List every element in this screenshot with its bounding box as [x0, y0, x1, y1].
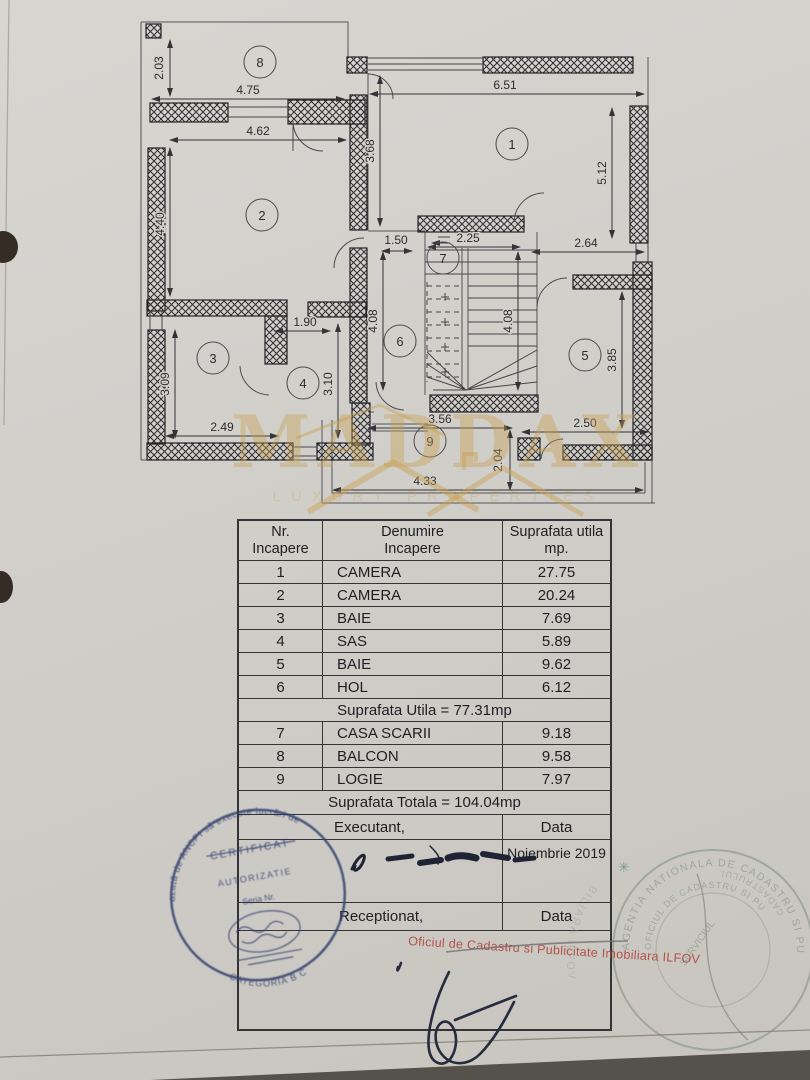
row-denumire: CAMERA	[322, 584, 502, 606]
table-row: 8 BALCON 9.58	[239, 744, 610, 767]
row-suprafata: 20.24	[502, 584, 610, 606]
dim-room3-h: 3.09	[158, 372, 172, 396]
table-row: 6 HOL 6.12	[239, 675, 610, 698]
room-label-9: 9	[426, 434, 433, 449]
header-suprafata-line2: mp.	[544, 541, 568, 558]
row-denumire: BAIE	[322, 607, 502, 629]
row-denumire: CAMERA	[322, 561, 502, 583]
row-suprafata: 27.75	[502, 561, 610, 583]
room-label-5: 5	[581, 348, 588, 363]
row-suprafata: 9.18	[502, 722, 610, 744]
row-denumire: HOL	[322, 676, 502, 698]
subtotal-text: Suprafata Utila = 77.31mp	[337, 702, 512, 719]
dim-room4-h: 3.10	[321, 372, 335, 396]
dim-hall-top-h: 3.68	[363, 139, 377, 163]
row-denumire: LOGIE	[322, 768, 502, 790]
executant-label: Executant,	[239, 815, 502, 839]
executant-row: Executant, Data	[239, 814, 610, 839]
dim-stairs-h-left: 4.08	[366, 309, 380, 333]
header-denumire-line1: Denumire	[381, 524, 444, 541]
table-row: 1 CAMERA 27.75	[239, 560, 610, 583]
dim-stairs-h-right: 4.08	[501, 309, 515, 333]
row-nr: 2	[239, 584, 322, 606]
date-value: Noiembrie 2019	[502, 840, 610, 902]
row-denumire: SAS	[322, 630, 502, 652]
row-suprafata: 9.62	[502, 653, 610, 675]
room-number-labels: 1 2 3 4 5 6 7 8 9	[209, 55, 588, 449]
table-row: 2 CAMERA 20.24	[239, 583, 610, 606]
receptionat-row: Receptionat, Data	[239, 902, 610, 930]
subtotal-row: Suprafata Utila = 77.31mp	[239, 698, 610, 721]
header-suprafata-line1: Suprafata utila	[510, 524, 604, 541]
table-row: 7 CASA SCARII 9.18	[239, 721, 610, 744]
row-nr: 5	[239, 653, 322, 675]
data-label-1: Data	[502, 815, 610, 839]
row-denumire: BAIE	[322, 653, 502, 675]
row-denumire: BALCON	[322, 745, 502, 767]
north-marker	[146, 24, 161, 38]
dim-balcony-w: 4.75	[236, 83, 260, 97]
data-label-2: Data	[502, 903, 610, 930]
receptionat-label: Receptionat,	[239, 903, 502, 930]
dim-logie-w: 4.33	[413, 474, 437, 488]
row-nr: 9	[239, 768, 322, 790]
room-label-7: 7	[439, 251, 446, 266]
table-row: 9 LOGIE 7.97	[239, 767, 610, 790]
total-row: Suprafata Totala = 104.04mp	[239, 790, 610, 814]
dim-stairs-w: 2.25	[456, 231, 480, 245]
header-nr-line1: Nr.	[271, 524, 290, 541]
room-label-4: 4	[299, 376, 306, 391]
row-suprafata: 7.69	[502, 607, 610, 629]
header-nr-line2: Incapere	[252, 541, 308, 558]
header-suprafata: Suprafata utila mp.	[502, 521, 610, 560]
dim-logie-h: 2.04	[491, 448, 505, 472]
dim-room5-h: 3.85	[605, 348, 619, 372]
dim-room3-w: 2.49	[210, 420, 234, 434]
dim-room5-w: 2.50	[573, 416, 597, 430]
dim-room2-w: 4.62	[246, 124, 270, 138]
header-nr: Nr. Incapere	[239, 521, 322, 560]
dim-balcony-h: 2.03	[152, 56, 166, 80]
signature-row: Noiembrie 2019	[239, 839, 610, 902]
row-denumire: CASA SCARII	[322, 722, 502, 744]
receptionat-signature-cell	[239, 930, 610, 1029]
room-label-8: 8	[256, 55, 263, 70]
table-header-row: Nr. Incapere Denumire Incapere Suprafata…	[239, 521, 610, 560]
row-suprafata: 9.58	[502, 745, 610, 767]
row-nr: 8	[239, 745, 322, 767]
row-nr: 4	[239, 630, 322, 652]
area-table: Nr. Incapere Denumire Incapere Suprafata…	[237, 519, 612, 1031]
header-denumire-line2: Incapere	[384, 541, 440, 558]
row-nr: 6	[239, 676, 322, 698]
dim-right-d: 2.64	[574, 236, 598, 250]
table-row: 3 BAIE 7.69	[239, 606, 610, 629]
table-row: 4 SAS 5.89	[239, 629, 610, 652]
row-suprafata: 7.97	[502, 768, 610, 790]
row-nr: 7	[239, 722, 322, 744]
total-text: Suprafata Totala = 104.04mp	[328, 794, 521, 811]
dim-room1-h: 5.12	[595, 161, 609, 185]
executant-signature-cell	[239, 840, 502, 902]
header-denumire: Denumire Incapere	[322, 521, 502, 560]
table-row: 5 BAIE 9.62	[239, 652, 610, 675]
room-label-3: 3	[209, 351, 216, 366]
room-label-6: 6	[396, 334, 403, 349]
dim-room1-w: 6.51	[493, 78, 517, 92]
dim-room2-h: 4.40	[153, 212, 167, 236]
row-suprafata: 6.12	[502, 676, 610, 698]
scanned-floor-plan-page: 4.75 2.03 4.62 4.40 6.51 3.68 5.12 1.50 …	[0, 0, 810, 1080]
room-label-2: 2	[258, 208, 265, 223]
row-nr: 3	[239, 607, 322, 629]
dim-pass-w: 1.90	[293, 315, 317, 329]
dim-logie-top: 3.56	[428, 412, 452, 426]
row-nr: 1	[239, 561, 322, 583]
dim-hall-d: 1.50	[384, 233, 408, 247]
row-suprafata: 5.89	[502, 630, 610, 652]
room-label-1: 1	[508, 137, 515, 152]
